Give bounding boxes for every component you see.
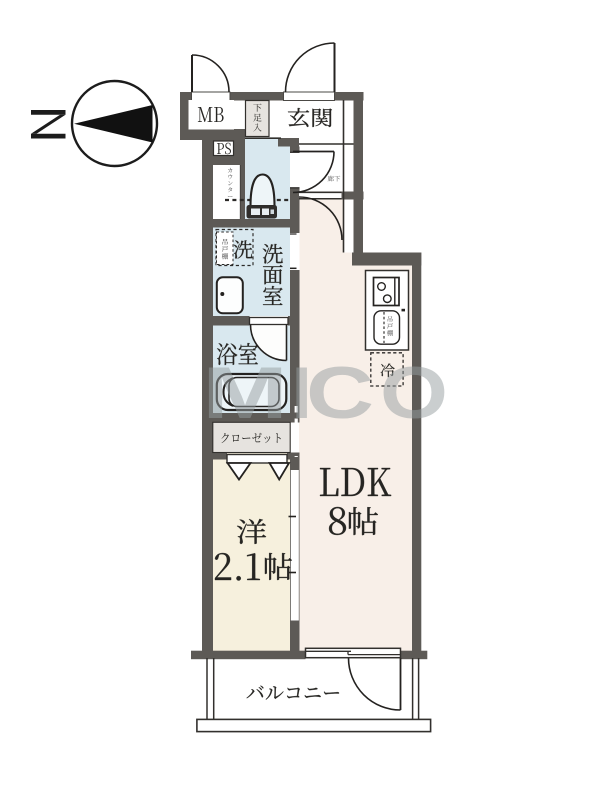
svg-text:O: O: [380, 353, 448, 434]
svg-text:C: C: [306, 353, 374, 434]
svg-text:M: M: [202, 353, 288, 434]
